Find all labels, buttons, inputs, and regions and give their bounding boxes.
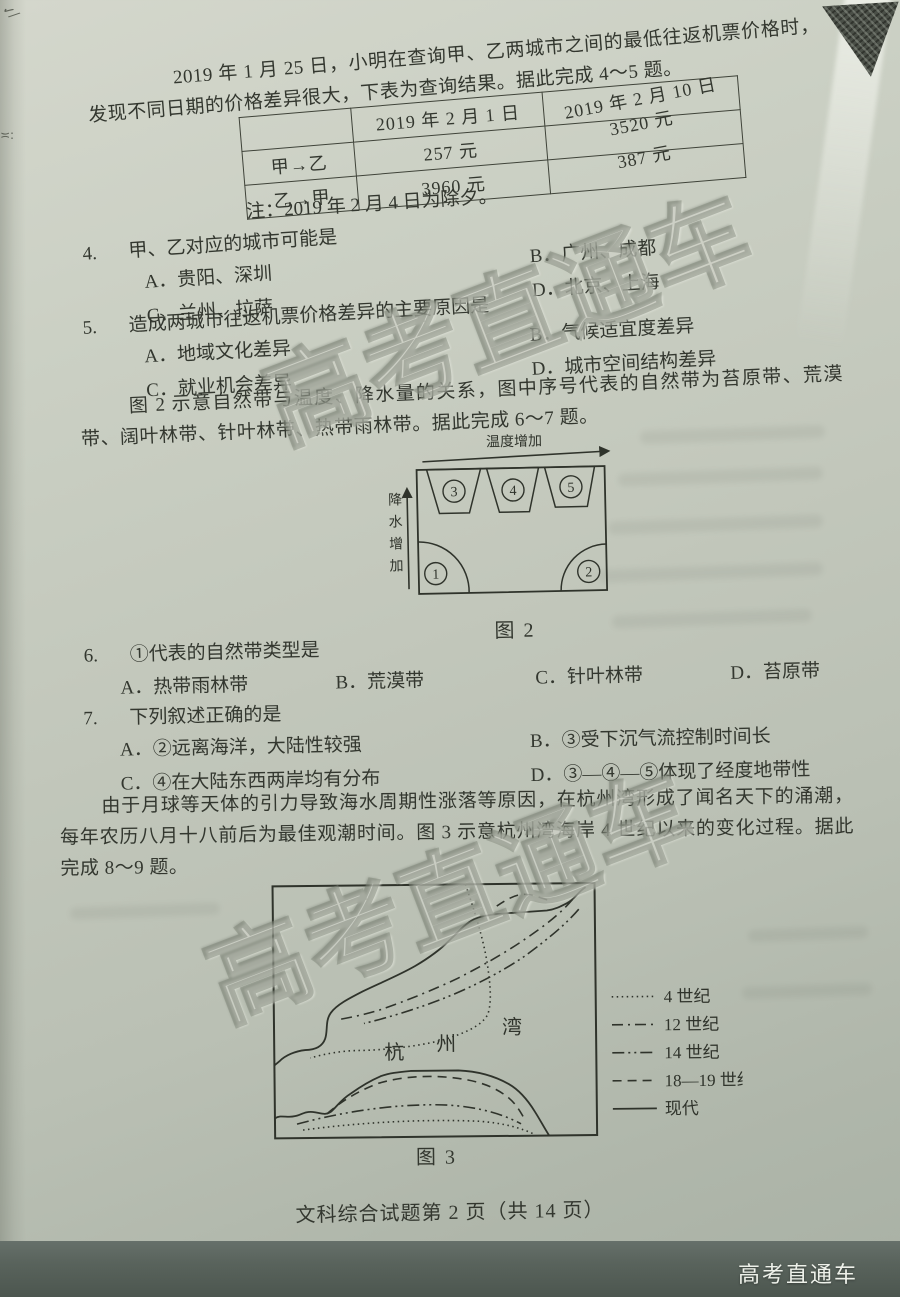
coastline-modern-south xyxy=(274,1070,549,1139)
scanned-exam-page: { "page": { "footer": "文科综合试题第 2 页（共 14 … xyxy=(0,0,900,1297)
bleedthrough-mark xyxy=(70,902,220,919)
bleedthrough-mark xyxy=(618,466,823,486)
legend-label-12c: 12 世纪 xyxy=(664,1015,719,1035)
coastline-14c-north xyxy=(363,909,580,1023)
zone2-number: 2 xyxy=(585,565,592,580)
bay-label-hang: 杭 xyxy=(384,1041,404,1064)
question-number: 4. xyxy=(82,237,130,270)
question-number: 5. xyxy=(82,311,130,344)
legend-label-4c: 4 世纪 xyxy=(664,987,711,1006)
figure3: 杭 州 湾 4 世纪 12 世纪 14 世纪 18—19 世纪 现代 图 3 xyxy=(260,873,743,1178)
bay-label-wan: 湾 xyxy=(502,1016,522,1039)
precipitation-axis-label-char: 水 xyxy=(388,514,402,530)
question-number: 7. xyxy=(83,703,130,734)
precipitation-axis-label-char: 降 xyxy=(388,492,402,508)
coastline-18-19c-north xyxy=(497,894,553,906)
zone5-number: 5 xyxy=(567,481,574,496)
zone2-arc xyxy=(560,544,607,591)
option-a: A．热带雨林带 xyxy=(120,669,336,704)
option-a: A．②远离海洋，大陆性较强 xyxy=(120,727,531,766)
figure3-caption: 图 3 xyxy=(263,1139,609,1172)
handwriting-mark: ≍: xyxy=(0,128,14,142)
scan-bottom-strip: 高考直通车 xyxy=(0,1241,900,1297)
figure2-diagram: 温度增加 降 水 增 加 3 4 5 1 2 xyxy=(386,429,640,609)
temperature-axis-label: 温度增加 xyxy=(486,433,542,450)
zone4-number: 4 xyxy=(509,484,516,499)
precipitation-axis-label-char: 增 xyxy=(389,536,403,552)
bay-label-zhou: 州 xyxy=(436,1033,456,1055)
option-d: D．苔原带 xyxy=(730,657,820,689)
coastline-12c-north xyxy=(337,899,574,1019)
brand-logo-text: 高考直通车 xyxy=(738,1257,858,1289)
figure2: 温度增加 降 水 增 加 3 4 5 1 2 图 2 xyxy=(386,429,640,645)
legend-label-14c: 14 世纪 xyxy=(664,1043,719,1063)
option-b: B．③受下沉气流控制时间长 xyxy=(530,720,885,757)
bleedthrough-mark xyxy=(608,514,823,534)
coastline-18-19c-south xyxy=(327,1075,525,1121)
option-c: C．针叶林带 xyxy=(535,659,731,694)
figure3-legend: 4 世纪 12 世纪 14 世纪 18—19 世纪 现代 xyxy=(612,986,744,1118)
precipitation-axis-label-char: 加 xyxy=(389,558,403,574)
scan-left-edge-shadow xyxy=(0,0,26,1241)
legend-label-modern: 现代 xyxy=(665,1099,699,1118)
bleedthrough-mark xyxy=(742,983,872,1000)
bleedthrough-mark xyxy=(748,926,868,942)
zone1-number: 1 xyxy=(432,568,439,583)
coastline-modern-north xyxy=(273,887,588,1065)
coastline-4c-north xyxy=(309,884,491,1058)
temperature-axis-arrow xyxy=(422,451,608,462)
option-b: B．荒漠带 xyxy=(335,664,536,699)
zone3-number: 3 xyxy=(450,485,457,500)
page-footer: 文科综合试题第 2 页（共 14 页） xyxy=(0,1188,900,1233)
coastline-4c-south xyxy=(303,1120,535,1138)
legend-label-18-19c: 18—19 世纪 xyxy=(664,1070,743,1090)
coastline-14c-south xyxy=(297,1104,521,1126)
figure3-map: 杭 州 湾 4 世纪 12 世纪 14 世纪 18—19 世纪 现代 xyxy=(260,873,743,1163)
zone1-arc xyxy=(418,541,469,594)
precipitation-axis-arrow xyxy=(407,489,409,589)
hangzhou-intro-paragraph: 由于月球等天体的引力导致海水周期性涨落等原因，在杭州湾形成了闻名天下的涌潮，每年… xyxy=(59,780,854,884)
question-number: 6. xyxy=(83,641,130,672)
